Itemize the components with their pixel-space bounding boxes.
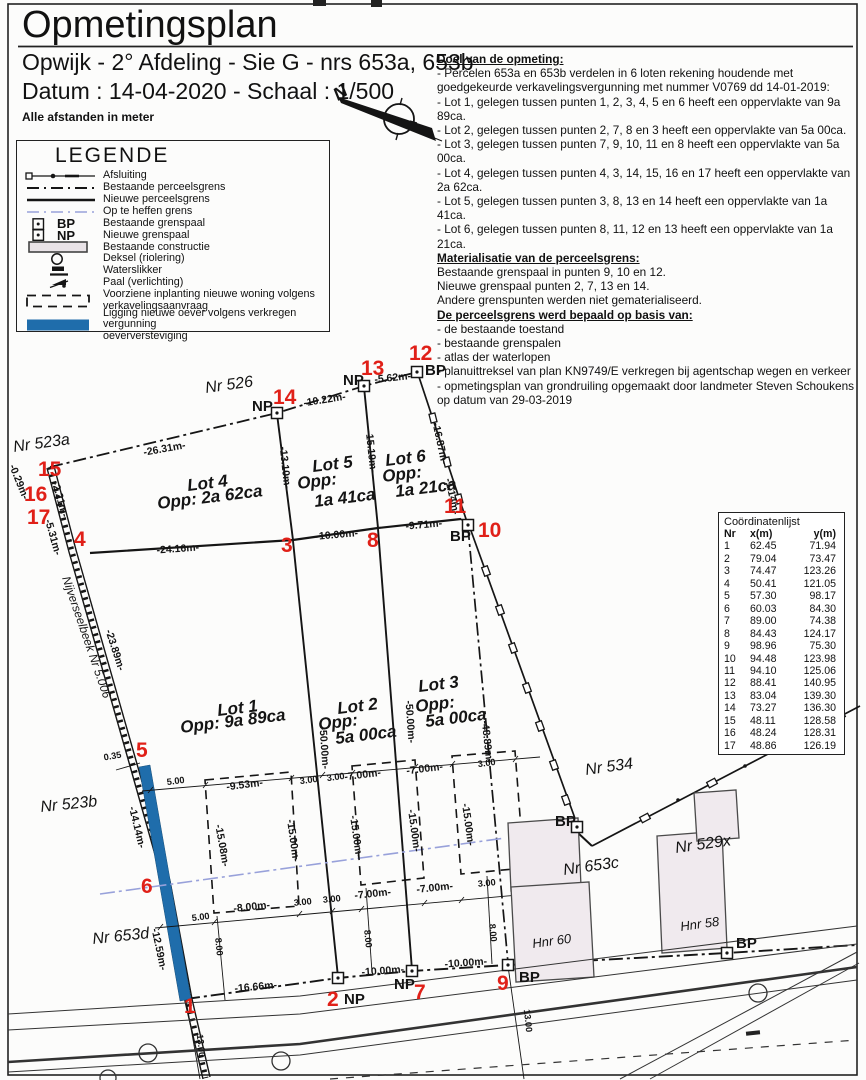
legend-label: Bestaande grenspaal bbox=[103, 218, 205, 230]
notes-line: Nieuwe grenspaal punten 2, 7, 13 en 14. bbox=[437, 279, 855, 293]
legend-label: Deksel (riolering) bbox=[103, 253, 185, 265]
point-number: 13 bbox=[361, 357, 384, 380]
parcel-label: Nr 523a bbox=[12, 431, 71, 456]
marker-tag: NP bbox=[394, 976, 415, 993]
legend-label: Bestaande perceelsgrens bbox=[103, 182, 225, 194]
coord-row: 660.0384.30 bbox=[719, 603, 844, 615]
point-number: 1 bbox=[184, 995, 196, 1018]
gully-icon bbox=[25, 265, 103, 277]
point-number: 8 bbox=[367, 529, 379, 552]
notes-line: Bestaande grenspaal in punten 9, 10 en 1… bbox=[437, 265, 855, 279]
measurement-label: -7.00m- bbox=[406, 761, 444, 777]
page-subtitle: Opwijk - 2° Afdeling - Sie G - nrs 653a,… bbox=[22, 49, 474, 75]
legend-label: Ligging nieuwe oever volgens verkregen v… bbox=[103, 308, 329, 331]
existing-buildings bbox=[508, 790, 739, 982]
point-number: 16 bbox=[24, 483, 47, 506]
header: Opmetingsplan Opwijk - 2° Afdeling - Sie… bbox=[22, 4, 474, 124]
measurement-label: -2.21m- bbox=[49, 480, 71, 519]
marker-tag: BP bbox=[450, 528, 471, 545]
measurement-label: 5.00 bbox=[166, 775, 185, 787]
coord-row: 1288.41140.95 bbox=[719, 677, 844, 689]
measurement-label: -15.00m- bbox=[459, 803, 477, 847]
legend-label: Nieuwe perceelsgrens bbox=[103, 194, 210, 206]
notes-line: - Lot 6, gelegen tussen punten 8, 11, 12… bbox=[437, 222, 855, 250]
point-number: 15 bbox=[38, 458, 62, 481]
legend-item: NP Nieuwe grenspaal bbox=[17, 229, 329, 241]
notes-line: - planuittreksel van plan KN9749/E verkr… bbox=[437, 364, 855, 378]
measurement-label: -15.08m- bbox=[212, 823, 231, 868]
coord-header-row: Nr x(m) y(m) bbox=[719, 528, 844, 540]
measurement-label: -7.00m- bbox=[354, 886, 392, 902]
new-boundary-icon bbox=[25, 194, 103, 206]
coord-row: 374.47123.26 bbox=[719, 565, 844, 577]
point-number: 17 bbox=[27, 506, 50, 529]
measurement-label: 8.00 bbox=[362, 929, 374, 948]
measurement-label: 13.00 bbox=[522, 1009, 534, 1033]
coordinate-table: Coördinatenlijst Nr x(m) y(m) 162.4571.9… bbox=[718, 512, 845, 755]
survey-notes: Doel van de opmeting: - Percelen 653a en… bbox=[437, 52, 855, 407]
coord-row: 1383.04139.30 bbox=[719, 690, 844, 702]
measurement-label: 8.00 bbox=[487, 923, 499, 942]
units-note: Alle afstanden in meter bbox=[22, 110, 474, 124]
measurement-label: -7.00m- bbox=[344, 767, 382, 783]
notes-line: - Lot 3, gelegen tussen punten 7, 9, 10,… bbox=[437, 137, 855, 165]
measurement-label: -12.59m- bbox=[149, 927, 170, 972]
notes-line: Andere grenspunten werden niet gemateria… bbox=[437, 293, 855, 307]
legend-item: Ligging nieuwe oever volgens verkregen v… bbox=[17, 313, 329, 337]
legend-label: Nieuwe grenspaal bbox=[103, 230, 189, 242]
measurement-label: -23.89m- bbox=[103, 628, 128, 673]
measurement-label: 3.00 bbox=[477, 757, 496, 769]
legend-label: Afsluiting bbox=[103, 170, 147, 182]
coord-row: 998.9675.30 bbox=[719, 640, 844, 652]
point-number: 7 bbox=[414, 981, 426, 1004]
planned-house-icon bbox=[25, 294, 103, 308]
measurement-label: -10.00m- bbox=[444, 956, 488, 971]
point-number: 2 bbox=[327, 988, 339, 1011]
notes-line: - opmetingsplan van grondruiling opgemaa… bbox=[437, 379, 855, 407]
coordinate-table-title: Coördinatenlijst bbox=[719, 513, 844, 528]
coord-row: 1548.11128.58 bbox=[719, 715, 844, 727]
notes-line: - Percelen 653a en 653b verdelen in 6 lo… bbox=[437, 66, 855, 94]
coord-row: 1194.10125.06 bbox=[719, 665, 844, 677]
measurement-label: 0.35 bbox=[103, 750, 122, 763]
legend-item: Paal (verlichting) bbox=[17, 277, 329, 289]
measurement-label: -16.66m- bbox=[234, 979, 278, 995]
coord-row: 1473.27136.30 bbox=[719, 702, 844, 714]
fence-symbol-icon bbox=[25, 170, 103, 182]
coord-row: 1094.48123.98 bbox=[719, 653, 844, 665]
legend-title: LEGENDE bbox=[55, 144, 329, 168]
legend-item: Nieuwe perceelsgrens bbox=[17, 194, 329, 206]
coord-row: 1748.86126.19 bbox=[719, 740, 844, 752]
legend-label: Paal (verlichting) bbox=[103, 277, 183, 289]
legend: LEGENDE Afsluiting Bestaande perceelsgre… bbox=[16, 140, 330, 332]
measurement-label: -26.31m- bbox=[142, 439, 187, 458]
measurement-label: 3.00 bbox=[477, 877, 496, 889]
new-bank-icon bbox=[25, 318, 103, 332]
marker-tag: NP bbox=[252, 398, 273, 415]
measurement-label: -10.00m- bbox=[315, 527, 359, 543]
point-number: 9 bbox=[497, 972, 509, 995]
measurement-label: -50.00m- bbox=[317, 726, 332, 770]
point-number: 4 bbox=[74, 528, 86, 551]
measurement-label: -15.00m- bbox=[347, 815, 365, 859]
coord-row: 557.3098.17 bbox=[719, 590, 844, 602]
notes-heading: Materialisatie van de perceelsgrens: bbox=[437, 251, 855, 265]
point-number: 10 bbox=[478, 519, 501, 542]
measurement-label: -14.14m- bbox=[126, 805, 148, 850]
measurement-label: 5.00 bbox=[191, 911, 210, 923]
legend-label: Op te heffen grens bbox=[103, 206, 192, 218]
parcel-label: Nr 653d bbox=[92, 925, 151, 948]
legend-item: Deksel (riolering) bbox=[17, 253, 329, 265]
notes-line: - de bestaande toestand bbox=[437, 322, 855, 336]
notes-line: - bestaande grenspalen bbox=[437, 336, 855, 350]
measurement-label: 8.00 bbox=[213, 937, 225, 956]
col-header: Nr bbox=[719, 528, 750, 540]
marker-tag: NP bbox=[343, 372, 364, 389]
legend-label: Bestaande constructie bbox=[103, 242, 210, 254]
parcel-label: Nr 526 bbox=[204, 373, 254, 397]
coord-row: 884.43124.17 bbox=[719, 628, 844, 640]
measurement-label: -10.22m- bbox=[303, 391, 347, 410]
existing-boundary-icon bbox=[25, 182, 103, 194]
measurement-label: -9.71m- bbox=[405, 517, 443, 532]
notes-heading: De perceelsgrens werd bepaald op basis v… bbox=[437, 308, 855, 322]
measurement-label: -9.53m- bbox=[226, 777, 264, 793]
point-number: 14 bbox=[273, 386, 297, 409]
dimension-lines bbox=[116, 756, 540, 1079]
coord-row: 450.41121.05 bbox=[719, 578, 844, 590]
legend-label: Waterslikker bbox=[103, 265, 162, 277]
measurement-label: 3.00 bbox=[293, 896, 312, 908]
col-header: y(m) bbox=[798, 528, 844, 540]
notes-heading: Doel van de opmeting: bbox=[437, 52, 855, 66]
existing-construction-icon bbox=[25, 241, 103, 253]
coord-row: 279.0473.47 bbox=[719, 553, 844, 565]
measurement-label: -13.10m- bbox=[277, 446, 293, 490]
legend-label: oeverversteviging bbox=[103, 331, 329, 343]
point-number: 11 bbox=[444, 495, 467, 518]
measurement-label: -15.19m- bbox=[363, 430, 379, 474]
notes-line: - Lot 4, gelegen tussen punten 4, 3, 14,… bbox=[437, 166, 855, 194]
measurement-label: 3.00 bbox=[299, 774, 318, 786]
manhole-icon bbox=[25, 253, 103, 265]
measurement-label: -7.00m- bbox=[416, 880, 454, 896]
light-pole-icon bbox=[25, 277, 103, 289]
coord-row: 1648.24128.31 bbox=[719, 727, 844, 739]
parcel-label: Nr 534 bbox=[584, 755, 634, 779]
col-header: x(m) bbox=[750, 528, 798, 540]
measurement-label: 3.00 bbox=[322, 893, 341, 905]
notes-line: - atlas der waterlopen bbox=[437, 350, 855, 364]
marker-tag: BP bbox=[736, 935, 757, 952]
legend-item: Bestaande perceelsgrens bbox=[17, 182, 329, 194]
lot-label: Lot 3 bbox=[417, 672, 460, 696]
measurement-label: -50.00m- bbox=[403, 700, 418, 744]
measurement-label: -8.00m- bbox=[233, 899, 271, 915]
parcel-label: Nr 523b bbox=[40, 793, 98, 816]
measurement-label: -15.00m- bbox=[405, 809, 423, 853]
point-number: 3 bbox=[281, 534, 293, 557]
measurement-label: -16.87m- bbox=[430, 421, 451, 466]
marker-tag: BP bbox=[555, 813, 576, 830]
point-number: 6 bbox=[141, 875, 153, 898]
measurement-label: -15.00m- bbox=[284, 819, 302, 863]
notes-line: - Lot 2, gelegen tussen punten 2, 7, 8 e… bbox=[437, 123, 855, 137]
date-scale: Datum : 14-04-2020 - Schaal : 1/500 bbox=[22, 78, 474, 104]
page-title: Opmetingsplan bbox=[22, 4, 474, 46]
manhole-icon bbox=[272, 1052, 290, 1070]
marker-tag: NP bbox=[344, 991, 365, 1008]
notes-line: - Lot 5, gelegen tussen punten 3, 8, 13 … bbox=[437, 194, 855, 222]
survey-plan-page: N Nr 526 Nr 523a Nr 523b Nr 653d Nr 534 … bbox=[0, 0, 866, 1080]
measurement-label: 3.00 bbox=[326, 771, 345, 783]
coord-row: 789.0074.38 bbox=[719, 615, 844, 627]
marker-tag: BP bbox=[519, 969, 540, 986]
coord-row: 162.4571.94 bbox=[719, 540, 844, 552]
notes-line: - Lot 1, gelegen tussen punten 1, 2, 3, … bbox=[437, 95, 855, 123]
point-number: 5 bbox=[136, 739, 148, 762]
measurement-label: -24.16m- bbox=[156, 542, 200, 557]
